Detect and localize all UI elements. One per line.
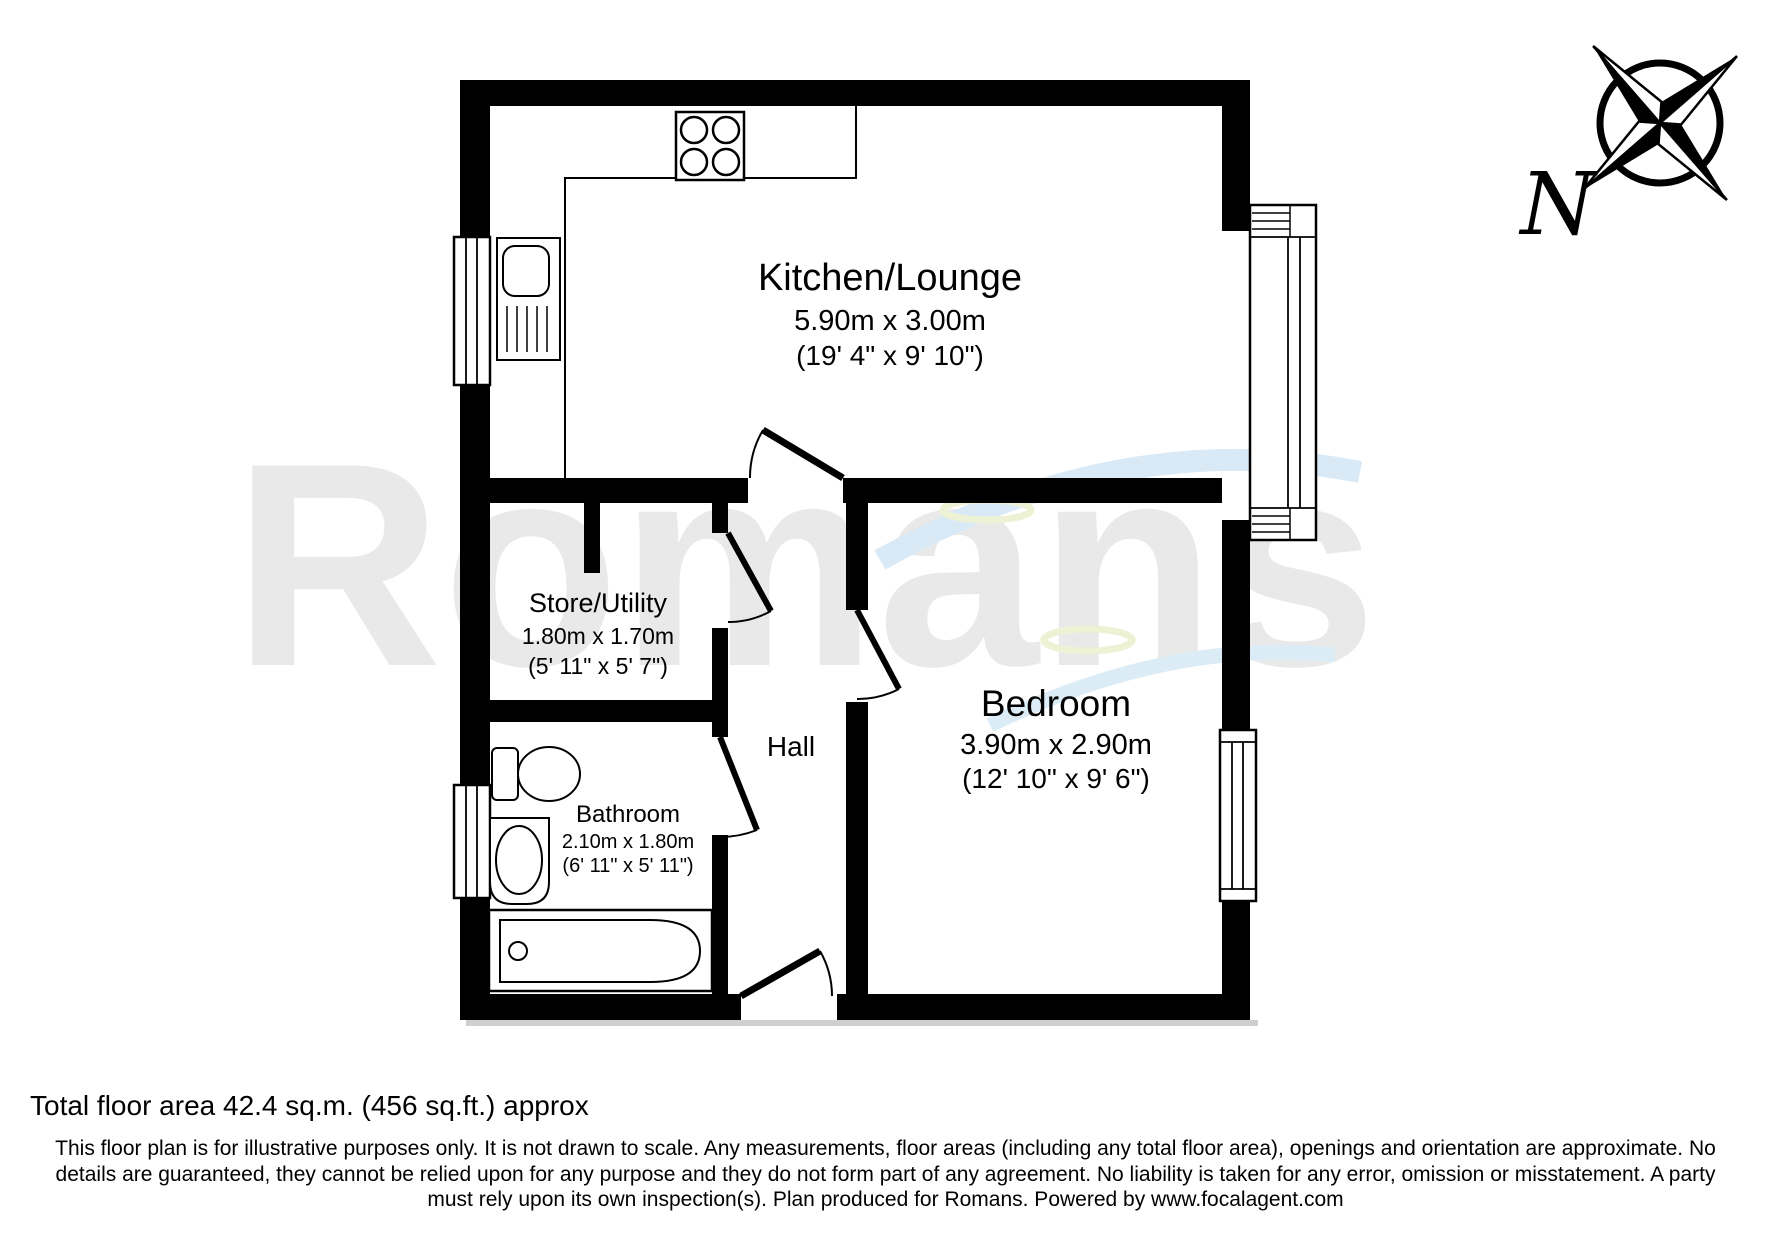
toilet-icon — [492, 747, 580, 801]
bedroom-metric: 3.90m x 2.90m — [960, 729, 1152, 761]
wall-hall-bedroom-upper — [846, 503, 868, 610]
store-utility-metric: 1.80m x 1.70m — [522, 623, 674, 649]
store-utility-name: Store/Utility — [529, 588, 668, 618]
kitchen-lounge-imperial: (19' 4" x 9' 10") — [796, 340, 984, 371]
basin-icon — [490, 818, 549, 904]
wall-kitchen-divider-left — [460, 478, 748, 503]
bay-window — [1250, 205, 1316, 540]
room-label-bedroom: Bedroom 3.90m x 2.90m (12' 10" x 9' 6") — [960, 683, 1152, 794]
compass-north-label: N — [1518, 155, 1598, 255]
bathroom-metric: 2.10m x 1.80m — [562, 831, 694, 853]
disclaimer-line-2: details are guaranteed, they cannot be r… — [0, 1162, 1771, 1188]
floor-plan: Romans — [0, 0, 1771, 1240]
bathtub-icon — [489, 910, 712, 991]
store-utility-imperial: (5' 11" x 5' 7") — [528, 653, 668, 679]
wall-store-bathroom — [460, 700, 728, 722]
wall-bottom-seg2 — [837, 994, 1250, 1020]
wall-right-seg3 — [1222, 899, 1250, 1020]
kitchen-lounge-name: Kitchen/Lounge — [758, 257, 1022, 299]
bedroom-name: Bedroom — [981, 683, 1131, 724]
kitchen-lounge-metric: 5.90m x 3.00m — [794, 305, 986, 337]
bedroom-window — [1220, 730, 1256, 901]
wall-left-seg1 — [460, 80, 490, 237]
wall-right-seg1 — [1222, 80, 1250, 231]
bathroom-imperial: (6' 11" x 5' 11") — [562, 855, 693, 877]
kitchen-window — [454, 237, 490, 385]
wall-right-seg2 — [1222, 520, 1250, 742]
floorplan-page: Romans — [0, 0, 1771, 1240]
wall-hall-bedroom-lower — [846, 702, 868, 994]
room-label-store-utility: Store/Utility 1.80m x 1.70m (5' 11" x 5'… — [522, 588, 674, 679]
total-floor-area: Total floor area 42.4 sq.m. (456 sq.ft.)… — [30, 1090, 589, 1122]
wall-store-hall-upper — [712, 503, 728, 533]
disclaimer-line-1: This floor plan is for illustrative purp… — [0, 1136, 1771, 1162]
disclaimer-line-3: must rely upon its own inspection(s). Pl… — [0, 1187, 1771, 1213]
room-label-kitchen-lounge: Kitchen/Lounge 5.90m x 3.00m (19' 4" x 9… — [758, 257, 1022, 371]
wall-bathroom-hall — [712, 835, 728, 994]
bathroom-door — [720, 737, 757, 837]
front-door — [741, 951, 832, 996]
wall-kitchen-divider-right — [843, 478, 1222, 503]
sink-icon — [497, 238, 560, 360]
wall-top — [460, 80, 1250, 106]
wall-shadow — [466, 1020, 1258, 1026]
hall-name: Hall — [767, 731, 815, 762]
hob-icon — [676, 112, 744, 180]
room-label-bathroom: Bathroom 2.10m x 1.80m (6' 11" x 5' 11") — [562, 801, 694, 877]
bathroom-window — [454, 785, 490, 898]
bathroom-name: Bathroom — [576, 801, 680, 828]
compass-rose: N — [1516, 0, 1771, 267]
wall-left-seg2 — [460, 385, 490, 785]
bedroom-imperial: (12' 10" x 9' 6") — [962, 763, 1150, 794]
room-label-hall: Hall — [767, 731, 815, 762]
wall-bottom-seg1 — [460, 994, 741, 1020]
wall-store-stub — [584, 503, 600, 573]
disclaimer: This floor plan is for illustrative purp… — [0, 1136, 1771, 1213]
